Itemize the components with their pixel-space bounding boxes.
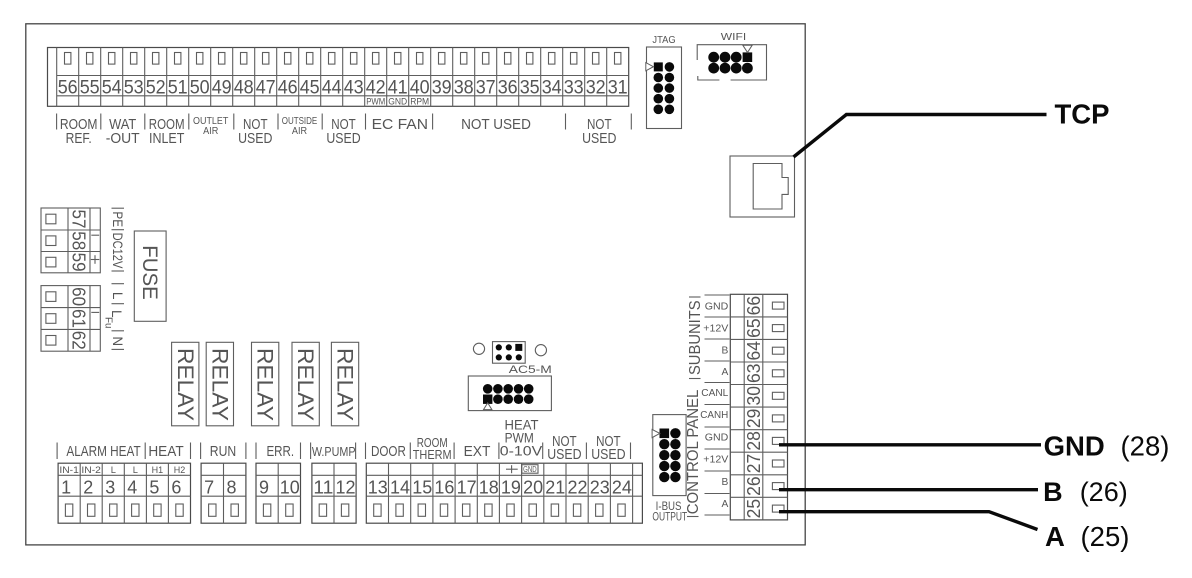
svg-text:32: 32 (586, 78, 606, 99)
svg-text:24: 24 (612, 477, 632, 498)
svg-text:40: 40 (410, 78, 430, 99)
svg-text:W.PUMP: W.PUMP (312, 444, 356, 459)
svg-text:41: 41 (388, 78, 408, 99)
svg-text:HEAT: HEAT (148, 443, 183, 460)
svg-text:CANL: CANL (701, 388, 728, 399)
svg-text:GND: GND (1044, 431, 1105, 462)
svg-text:56: 56 (58, 78, 78, 99)
svg-text:59: 59 (69, 253, 89, 272)
svg-text:4: 4 (127, 477, 137, 498)
svg-text:21: 21 (545, 477, 565, 498)
svg-text:58: 58 (69, 231, 89, 250)
svg-text:B: B (722, 345, 729, 356)
svg-text:OUTPUT: OUTPUT (652, 509, 687, 523)
svg-text:33: 33 (564, 78, 584, 99)
svg-text:2: 2 (83, 477, 93, 498)
svg-text:USED: USED (326, 130, 360, 147)
svg-text:B: B (722, 477, 729, 488)
svg-text:N: N (110, 336, 125, 346)
svg-text:L: L (110, 292, 125, 300)
svg-text:ALARM HEAT: ALARM HEAT (66, 443, 140, 460)
svg-text:DOOR: DOOR (371, 443, 406, 460)
svg-text:GND: GND (705, 302, 729, 313)
svg-text:51: 51 (168, 78, 188, 99)
svg-text:H2: H2 (174, 465, 186, 475)
svg-text:13: 13 (368, 477, 388, 498)
svg-text:47: 47 (256, 78, 276, 99)
svg-text:RPM: RPM (410, 97, 429, 107)
svg-text:16: 16 (434, 477, 454, 498)
svg-text:5: 5 (149, 477, 159, 498)
svg-text:23: 23 (590, 477, 610, 498)
svg-text:36: 36 (498, 78, 518, 99)
svg-text:30: 30 (744, 386, 764, 406)
svg-text:RELAY: RELAY (207, 348, 232, 421)
svg-text:WIFI: WIFI (721, 31, 746, 43)
svg-text:USED: USED (547, 446, 581, 463)
svg-text:15: 15 (412, 477, 432, 498)
svg-text:44: 44 (322, 78, 342, 99)
svg-text:USED: USED (591, 446, 625, 463)
svg-text:54: 54 (102, 78, 122, 99)
svg-text:43: 43 (344, 78, 364, 99)
svg-text:+12V: +12V (703, 323, 728, 334)
svg-text:18: 18 (479, 477, 499, 498)
svg-text:65: 65 (744, 318, 764, 338)
svg-text:14: 14 (390, 477, 410, 498)
svg-text:28: 28 (744, 431, 764, 451)
svg-text:55: 55 (80, 78, 100, 99)
svg-text:SUBUNITS: SUBUNITS (687, 300, 704, 375)
svg-text:+12V: +12V (703, 455, 728, 466)
svg-text:PE: PE (110, 211, 125, 227)
svg-text:0-10V: 0-10V (500, 444, 542, 459)
svg-text:34: 34 (542, 78, 562, 99)
svg-text:45: 45 (300, 78, 320, 99)
svg-text:PWM: PWM (366, 97, 385, 107)
svg-text:A: A (722, 499, 729, 510)
svg-text:IN-2: IN-2 (81, 465, 101, 475)
svg-text:20: 20 (523, 477, 543, 498)
svg-text:JTAG: JTAG (652, 34, 675, 46)
svg-text:CANH: CANH (700, 410, 728, 421)
svg-text:38: 38 (454, 78, 474, 99)
svg-text:EC FAN: EC FAN (372, 116, 428, 133)
svg-text:50: 50 (190, 78, 210, 99)
svg-text:10: 10 (280, 477, 300, 498)
svg-text:H1: H1 (152, 465, 164, 475)
svg-text:A: A (1045, 521, 1065, 552)
svg-text:12: 12 (336, 477, 356, 498)
svg-text:63: 63 (744, 364, 764, 384)
svg-text:L: L (111, 465, 116, 475)
svg-text:3: 3 (105, 477, 115, 498)
svg-text:USED: USED (582, 130, 616, 147)
svg-text:GND: GND (388, 97, 407, 107)
svg-text:27: 27 (744, 454, 764, 474)
svg-text:CONTROL PANEL: CONTROL PANEL (685, 390, 702, 515)
svg-text:64: 64 (744, 341, 764, 361)
svg-text:GND: GND (523, 465, 537, 474)
svg-text:L: L (133, 465, 138, 475)
svg-text:TCP: TCP (1055, 98, 1110, 129)
svg-text:29: 29 (744, 409, 764, 429)
svg-text:66: 66 (744, 296, 764, 316)
svg-text:REF.: REF. (66, 130, 92, 147)
svg-text:RELAY: RELAY (253, 348, 278, 421)
svg-text:(25): (25) (1081, 521, 1130, 552)
svg-text:60: 60 (69, 287, 89, 306)
svg-text:19: 19 (501, 477, 521, 498)
svg-text:USED: USED (238, 130, 272, 147)
svg-text:INLET: INLET (149, 130, 184, 147)
svg-text:THERM: THERM (413, 447, 452, 462)
svg-text:DC12V: DC12V (110, 233, 125, 269)
svg-text:RELAY: RELAY (333, 348, 358, 421)
svg-text:B: B (1043, 477, 1063, 507)
svg-text:57: 57 (69, 210, 89, 229)
svg-text:46: 46 (278, 78, 298, 99)
svg-text:Fu: Fu (102, 317, 113, 328)
svg-text:NOT USED: NOT USED (461, 116, 531, 133)
svg-text:52: 52 (146, 78, 166, 99)
svg-text:A: A (722, 367, 729, 378)
svg-text:FUSE: FUSE (138, 245, 161, 300)
svg-text:42: 42 (366, 78, 386, 99)
svg-text:53: 53 (124, 78, 144, 99)
svg-text:8: 8 (227, 477, 237, 498)
svg-text:ERR.: ERR. (266, 443, 294, 460)
svg-text:37: 37 (476, 78, 496, 99)
svg-text:31: 31 (608, 78, 628, 99)
svg-text:49: 49 (212, 78, 232, 99)
svg-text:AIR: AIR (292, 126, 307, 137)
svg-text:RELAY: RELAY (173, 348, 198, 421)
svg-text:39: 39 (432, 78, 452, 99)
svg-text:6: 6 (171, 477, 181, 498)
svg-text:9: 9 (259, 477, 269, 498)
svg-text:7: 7 (204, 477, 214, 498)
svg-text:48: 48 (234, 78, 254, 99)
svg-text:(26): (26) (1080, 477, 1128, 507)
svg-text:35: 35 (520, 78, 540, 99)
svg-text:AIR: AIR (203, 126, 218, 137)
svg-text:GND: GND (705, 433, 729, 444)
svg-text:25: 25 (744, 499, 764, 518)
svg-text:EXT: EXT (464, 443, 491, 460)
svg-text:-OUT: -OUT (106, 130, 140, 147)
svg-text:1: 1 (61, 477, 71, 498)
svg-text:RUN: RUN (210, 443, 236, 460)
svg-text:11: 11 (313, 477, 333, 498)
svg-text:AC5-M: AC5-M (509, 364, 552, 376)
svg-text:(28): (28) (1121, 431, 1170, 462)
svg-text:61: 61 (69, 309, 89, 328)
svg-text:IN-1: IN-1 (59, 465, 79, 475)
svg-text:62: 62 (69, 331, 89, 350)
svg-text:26: 26 (744, 476, 764, 496)
svg-text:22: 22 (568, 477, 588, 498)
svg-text:RELAY: RELAY (293, 348, 318, 421)
svg-text:17: 17 (457, 477, 477, 498)
